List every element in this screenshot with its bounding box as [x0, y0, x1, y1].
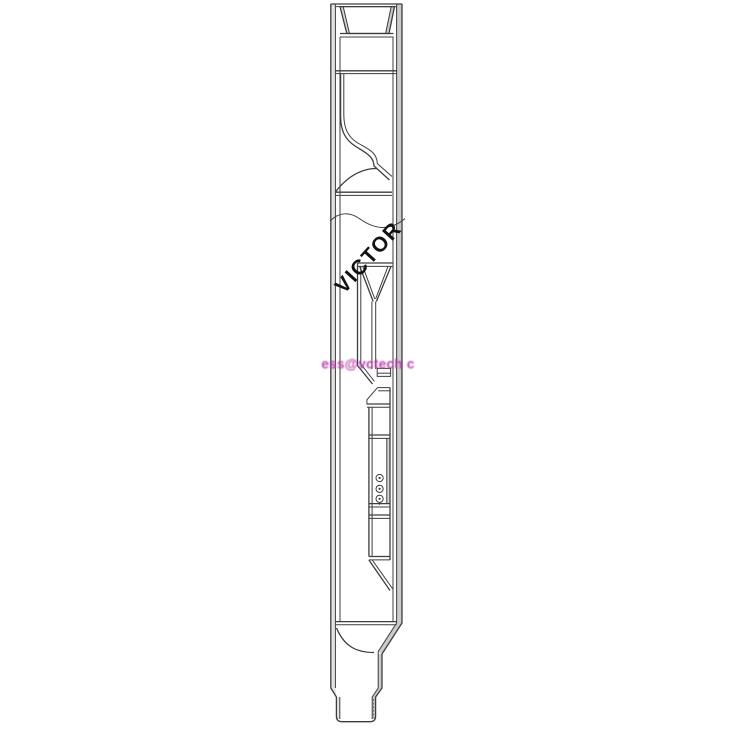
port-holes	[376, 474, 383, 504]
upper-bore	[335, 37, 396, 622]
drawing-canvas: VICTOR ess@vctech c	[0, 0, 730, 730]
top-box-connection	[331, 4, 402, 37]
watermark-email: ess@vctech c	[321, 357, 414, 372]
